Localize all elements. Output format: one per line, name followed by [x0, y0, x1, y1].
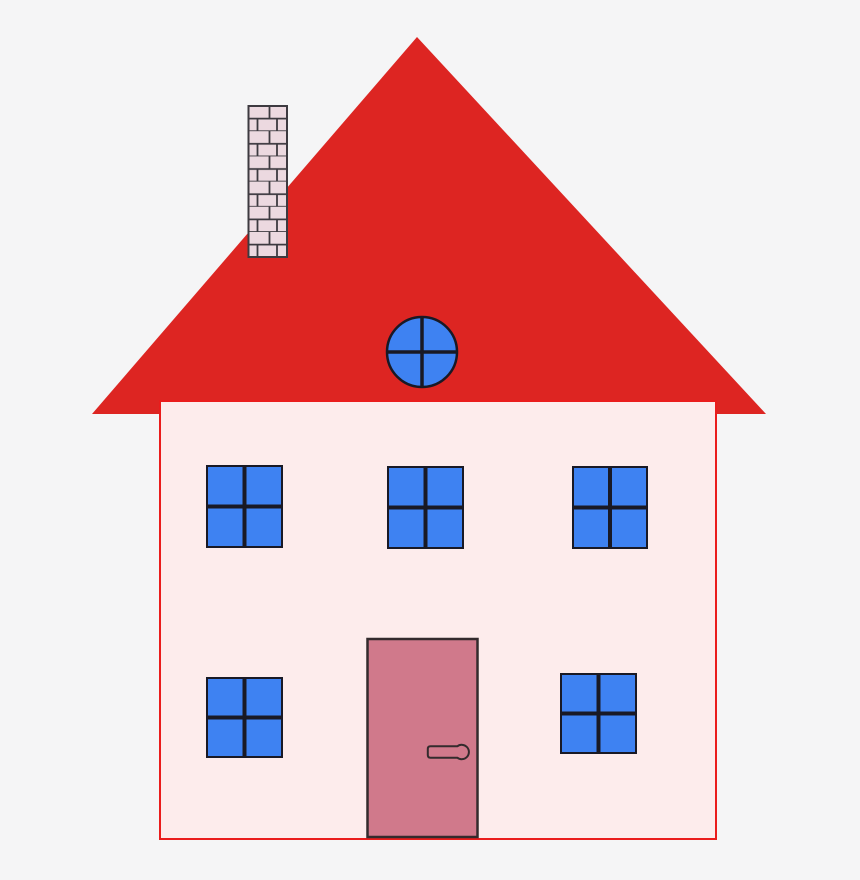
- window-lower-right: [561, 674, 636, 753]
- window-lower-left: [207, 678, 282, 757]
- window-upper-left: [207, 466, 282, 547]
- attic-round-window: [386, 316, 458, 388]
- canvas: [0, 0, 860, 880]
- door: [368, 639, 478, 837]
- chimney: [249, 106, 288, 257]
- house-clipart: [0, 0, 860, 880]
- door-panel: [368, 639, 478, 837]
- window-upper-right: [573, 467, 647, 548]
- window-upper-middle: [388, 467, 463, 548]
- door-handle: [428, 745, 469, 759]
